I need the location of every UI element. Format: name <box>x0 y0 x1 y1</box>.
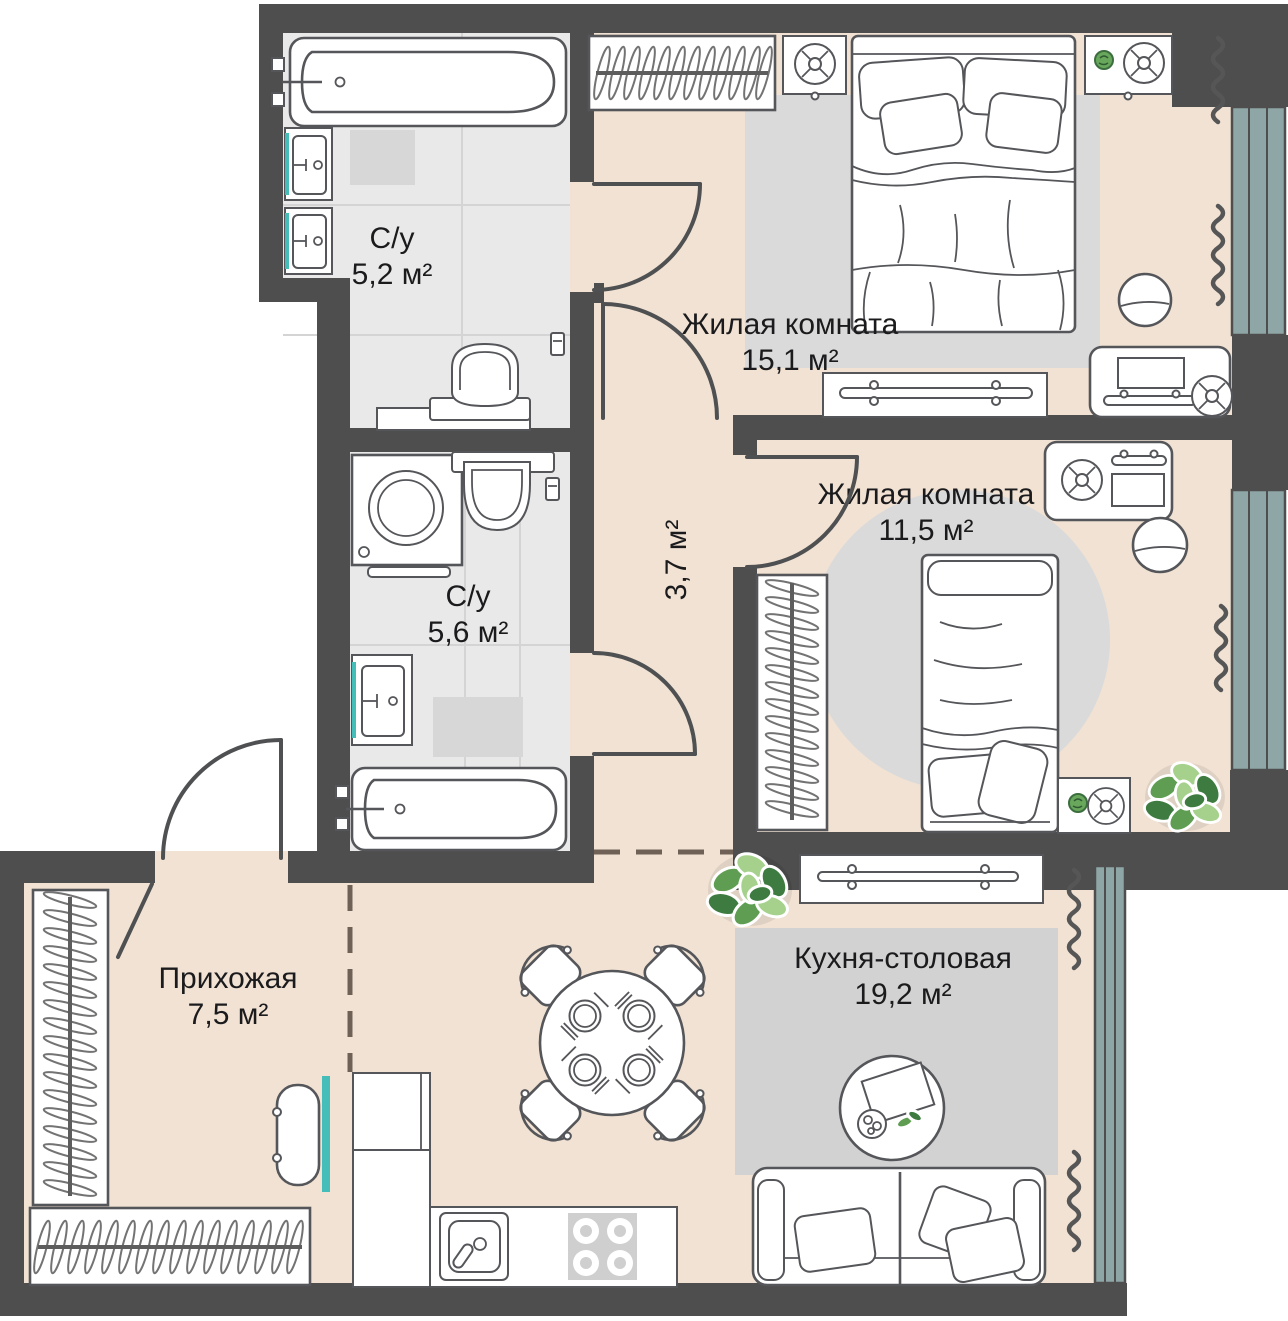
single-bed-icon <box>922 555 1058 832</box>
room-area-kitchen: 19,2 м² <box>854 978 951 1011</box>
room-area-hallway: 3,7 м² <box>660 520 693 601</box>
sofa-icon <box>753 1168 1045 1285</box>
room-area-bathroom-2: 5,6 м² <box>428 616 509 649</box>
bath-mat <box>433 697 523 757</box>
bathtub-icon <box>272 38 566 126</box>
fridge-icon <box>353 1073 430 1150</box>
stove-icon <box>568 1213 637 1280</box>
kitchen-sink-icon <box>440 1213 508 1280</box>
wardrobe-icon <box>757 575 827 830</box>
nightstand-icon <box>1058 778 1130 833</box>
bath-mat <box>350 130 415 185</box>
window-bedroom-1 <box>1232 107 1285 335</box>
window-kitchen <box>1095 866 1125 1283</box>
sink-icon <box>285 128 332 200</box>
room-area-bathroom-1: 5,2 м² <box>352 258 433 291</box>
shelf-icon <box>823 373 1047 417</box>
floor-plan: С/у 5,2 м² С/у 5,6 м² 3,7 м² <box>0 0 1288 1321</box>
coffee-table-icon <box>840 1056 944 1160</box>
nightstand-icon <box>1085 36 1172 100</box>
room-area-bedroom-1: 15,1 м² <box>741 344 838 377</box>
washing-machine-icon <box>352 455 462 577</box>
sink-icon <box>352 655 412 745</box>
double-bed-icon <box>852 36 1075 332</box>
room-label-bathroom-1: С/у <box>370 222 415 255</box>
room-area-entry: 7,5 м² <box>188 998 269 1031</box>
wardrobe-icon <box>30 1208 310 1285</box>
mirror-icon <box>1133 518 1187 572</box>
wardrobe-icon <box>589 36 775 110</box>
sink-icon <box>285 208 332 274</box>
room-label-bedroom-1: Жилая комната <box>682 308 899 341</box>
room-area-bedroom-2: 11,5 м² <box>878 514 973 547</box>
shelf-icon <box>800 855 1043 903</box>
window-bedroom-2 <box>1232 490 1285 770</box>
mirror-icon <box>1119 274 1171 326</box>
wardrobe-icon <box>33 889 108 1205</box>
room-label-bathroom-2: С/у <box>446 580 491 613</box>
dresser-icon <box>1090 347 1232 417</box>
nightstand-icon <box>783 36 846 100</box>
bench-mat <box>322 1076 330 1192</box>
bathtub-icon <box>336 768 566 850</box>
room-label-entry: Прихожая <box>158 962 297 995</box>
desk-icon <box>1045 442 1172 520</box>
room-label-kitchen: Кухня-столовая <box>794 942 1012 975</box>
